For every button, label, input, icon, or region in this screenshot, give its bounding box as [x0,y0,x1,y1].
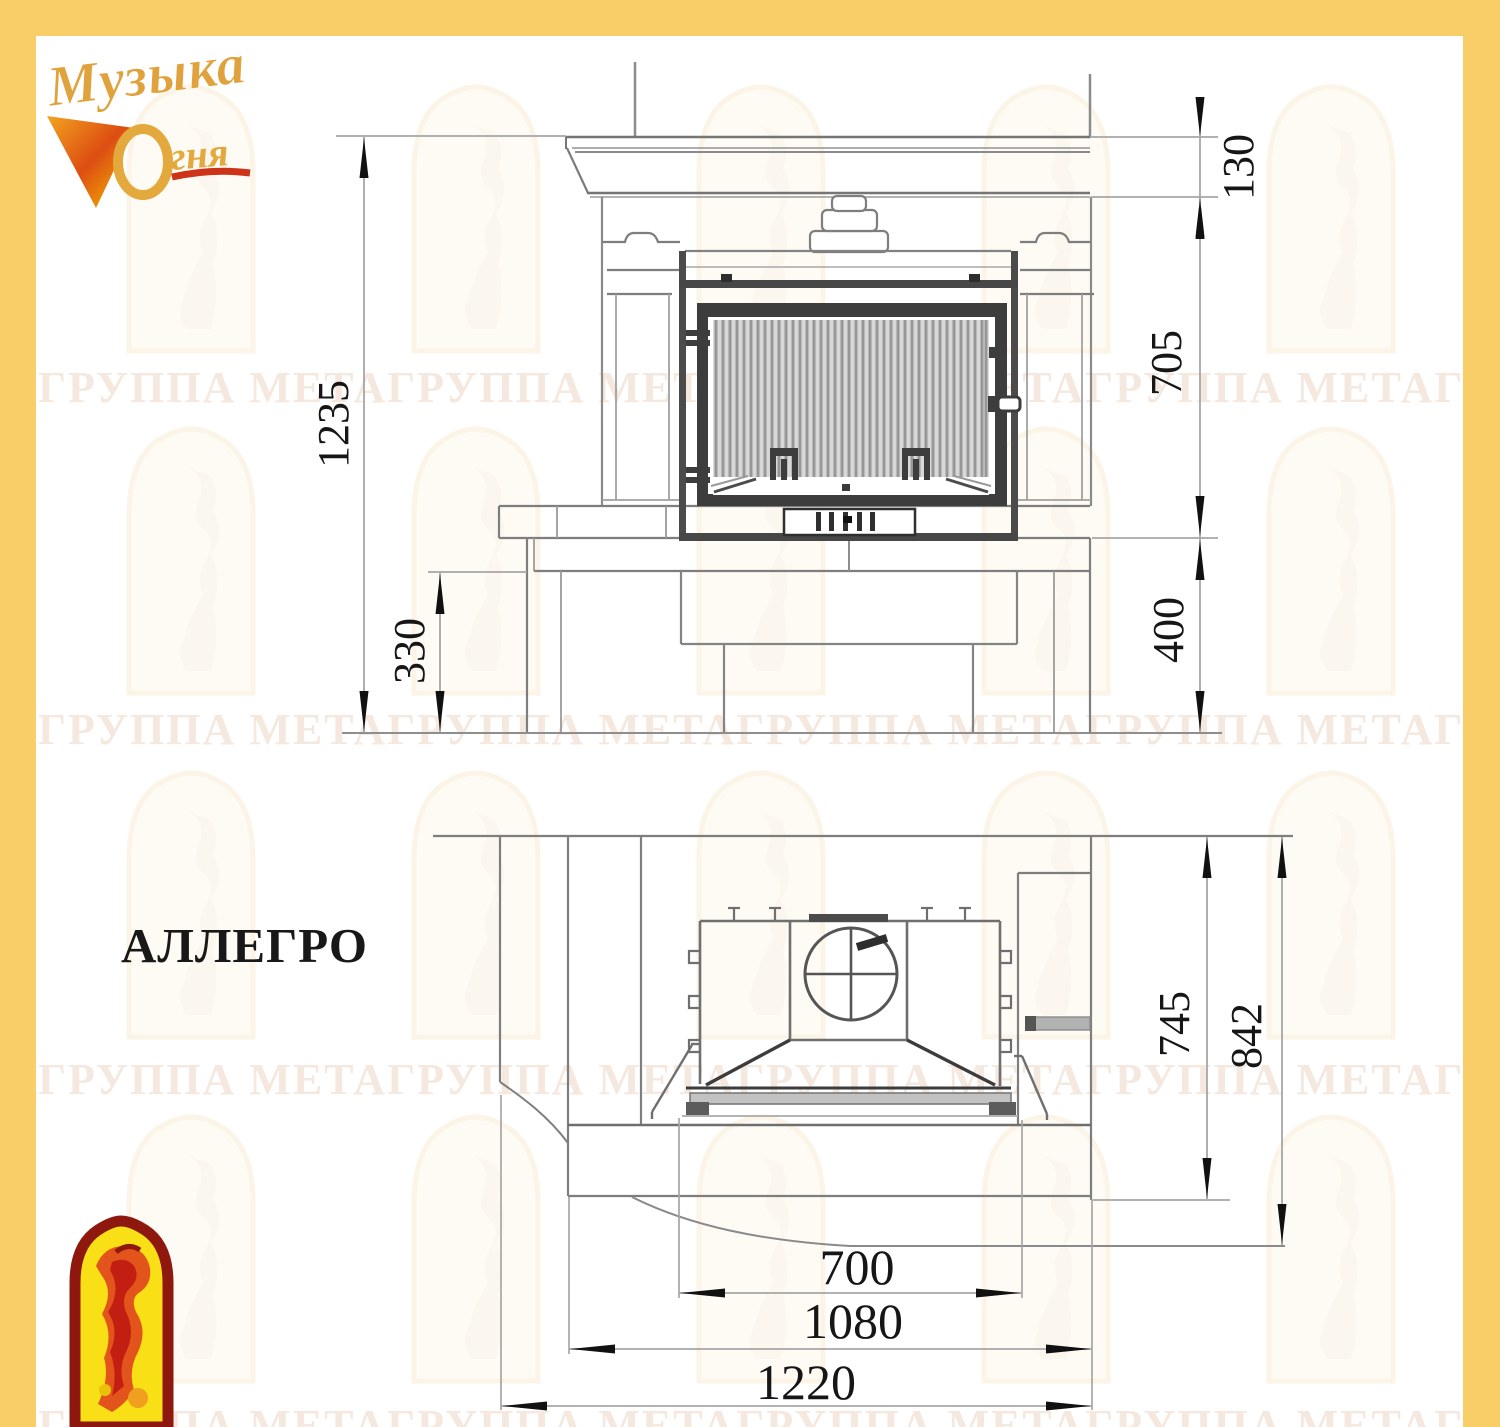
svg-text:745: 745 [1150,991,1199,1057]
svg-text:ГРУППА МЕТАГРУППА МЕТАГРУППА М: ГРУППА МЕТАГРУППА МЕТАГРУППА МЕТАГРУППА … [38,705,1500,754]
svg-text:330: 330 [385,618,434,684]
svg-text:1080: 1080 [803,1293,903,1349]
svg-text:400: 400 [1144,597,1193,663]
svg-text:1235: 1235 [309,380,358,468]
svg-text:АЛЛЕГРО: АЛЛЕГРО [121,918,368,973]
svg-text:705: 705 [1142,330,1191,396]
svg-text:1220: 1220 [756,1354,856,1410]
svg-text:842: 842 [1222,1003,1271,1069]
svg-text:700: 700 [820,1239,895,1295]
svg-text:130: 130 [1214,134,1263,200]
